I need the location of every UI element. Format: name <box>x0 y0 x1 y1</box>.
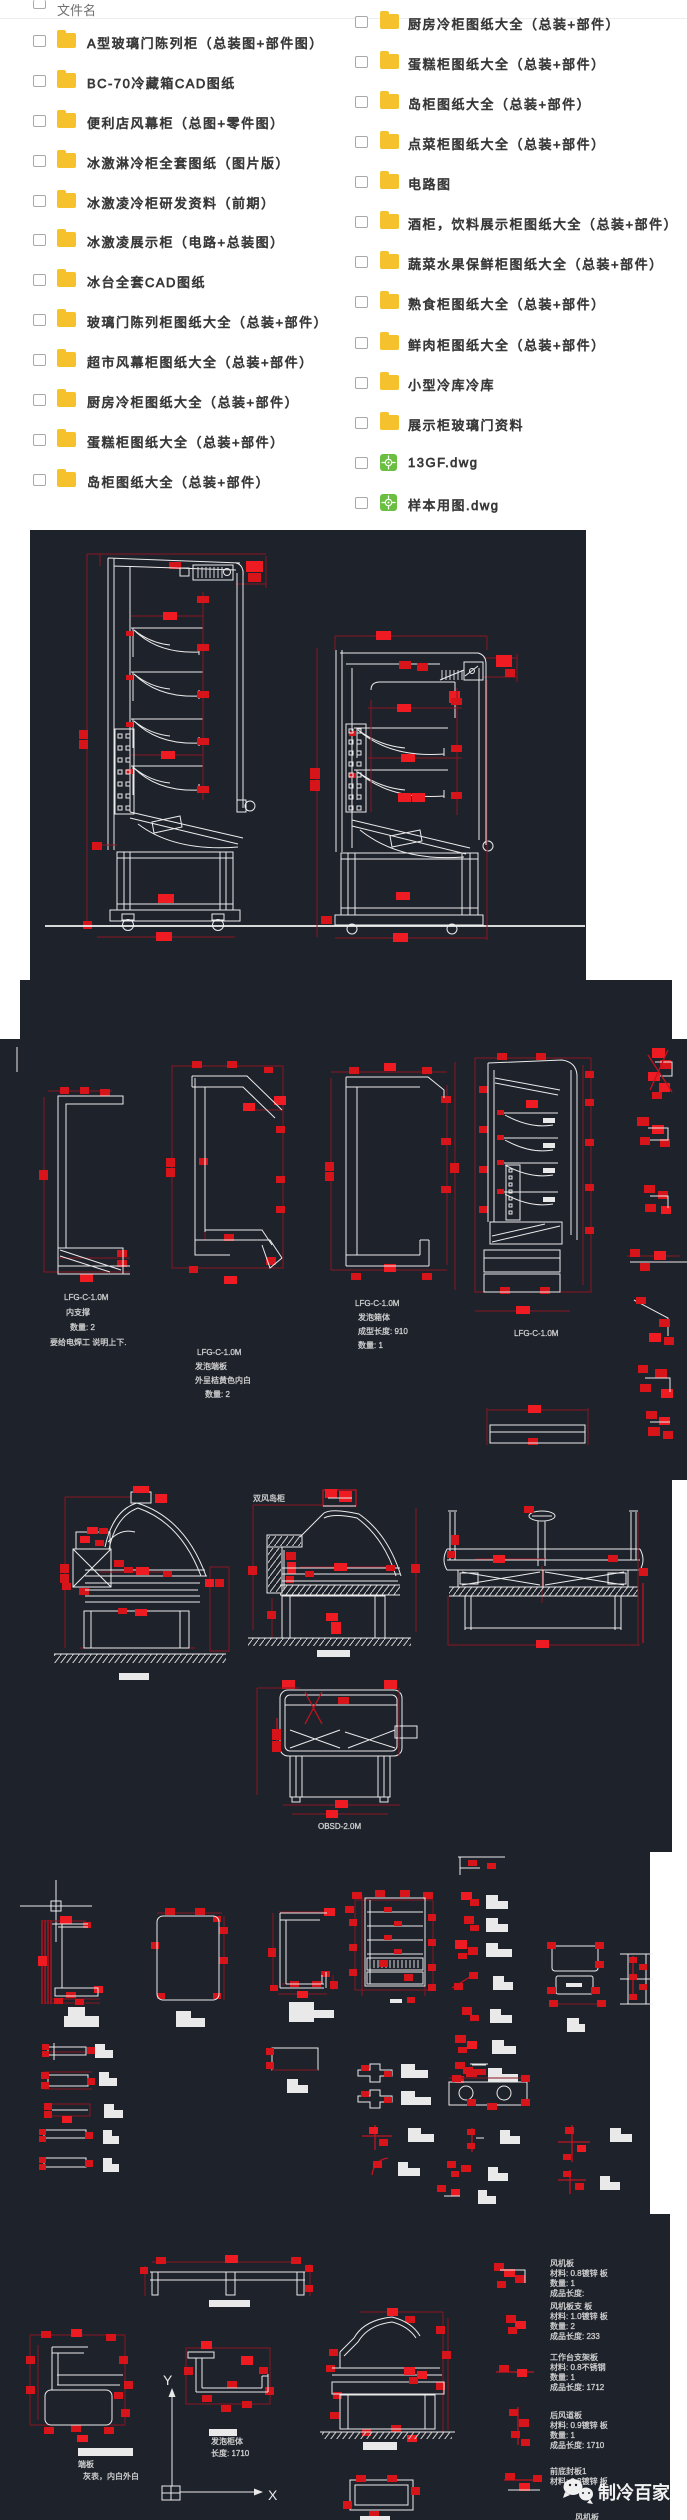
svg-text:数量: 1: 数量: 1 <box>550 2278 575 2288</box>
svg-text:风机板: 风机板 <box>575 2512 599 2520</box>
svg-text:成品长度: 233: 成品长度: 233 <box>550 2331 600 2341</box>
svg-text:OBSD-2.0M: OBSD-2.0M <box>318 1822 361 1831</box>
svg-text:发泡箱体: 发泡箱体 <box>358 1312 390 1322</box>
svg-text:外呈桔黄色内白: 外呈桔黄色内白 <box>195 1375 251 1385</box>
svg-text:数量: 1: 数量: 1 <box>358 1340 383 1350</box>
svg-text:成品长度: 1710: 成品长度: 1710 <box>550 2440 605 2450</box>
svg-text:长度: 1710: 长度: 1710 <box>211 2448 250 2458</box>
svg-text:X: X <box>268 2487 278 2503</box>
svg-text:数量: 2: 数量: 2 <box>70 1322 95 1332</box>
svg-text:材料: 0.8镀锌 板: 材料: 0.8镀锌 板 <box>550 2268 608 2278</box>
svg-text:工作台支架板: 工作台支架板 <box>550 2352 598 2362</box>
svg-text:要给电焊工 说明上下.: 要给电焊工 说明上下. <box>50 1337 126 1347</box>
svg-text:材料: 0.8不锈钢: 材料: 0.8不锈钢 <box>550 2362 606 2372</box>
svg-text:发泡柜体: 发泡柜体 <box>211 2436 243 2446</box>
svg-text:Y: Y <box>163 2372 173 2388</box>
svg-text:成型长度: 910: 成型长度: 910 <box>358 1326 408 1336</box>
svg-text:LFG-C-1.0M: LFG-C-1.0M <box>197 1348 242 1357</box>
svg-text:风机板支 板: 风机板支 板 <box>550 2301 592 2311</box>
svg-text:LFG-C-1.0M: LFG-C-1.0M <box>514 1329 559 1338</box>
svg-text:前底封板1: 前底封板1 <box>550 2466 587 2476</box>
svg-text:后风道板: 后风道板 <box>550 2410 582 2420</box>
svg-text:数量: 1: 数量: 1 <box>550 2372 575 2382</box>
svg-text:数量: 2: 数量: 2 <box>550 2321 575 2331</box>
svg-text:数量: 2: 数量: 2 <box>205 1389 230 1399</box>
svg-text:双风岛柜: 双风岛柜 <box>253 1493 285 1503</box>
svg-text:灰表，内白外白: 灰表，内白外白 <box>83 2471 139 2481</box>
svg-text:发泡端板: 发泡端板 <box>195 1361 227 1371</box>
svg-text:风机板: 风机板 <box>550 2258 574 2268</box>
svg-text:内支撑: 内支撑 <box>66 1307 90 1317</box>
svg-text:LFG-C-1.0M: LFG-C-1.0M <box>64 1293 109 1302</box>
svg-text:数量: 1: 数量: 1 <box>550 2430 575 2440</box>
svg-text:成品长度: 1712: 成品长度: 1712 <box>550 2382 605 2392</box>
svg-text:制冷百家: 制冷百家 <box>598 2482 671 2503</box>
svg-text:材料: 1.0镀锌 板: 材料: 1.0镀锌 板 <box>550 2311 608 2321</box>
svg-text:成品长度:: 成品长度: <box>550 2288 584 2298</box>
svg-text:材料: 0.9镀锌 板: 材料: 0.9镀锌 板 <box>550 2420 608 2430</box>
svg-text:LFG-C-1.0M: LFG-C-1.0M <box>355 1299 400 1308</box>
svg-text:端板: 端板 <box>78 2459 94 2469</box>
